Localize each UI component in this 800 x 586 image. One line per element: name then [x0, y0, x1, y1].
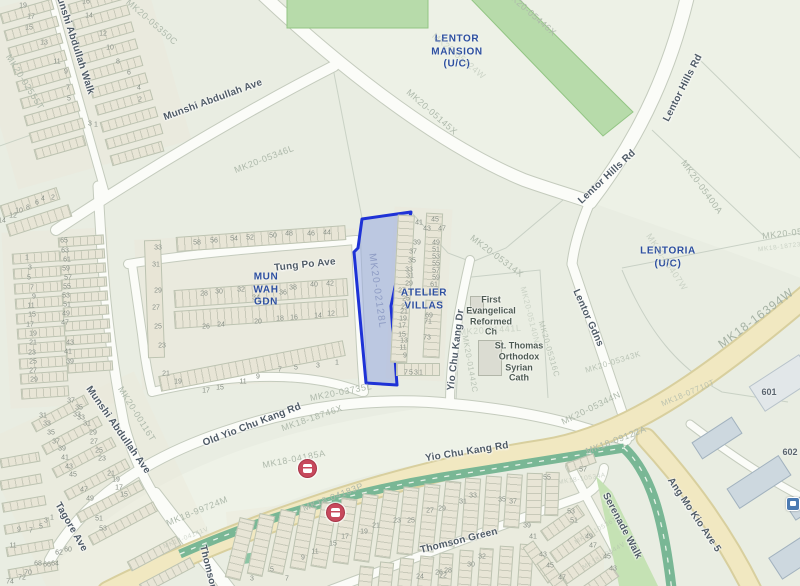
transit-poi-marker-icon[interactable]	[326, 503, 345, 522]
map-geometry	[0, 0, 800, 586]
map-canvas[interactable]: 1917151311975311614121086421412108642135…	[0, 0, 800, 586]
transit-poi-marker-icon[interactable]	[298, 459, 317, 478]
bus-stop-icon[interactable]	[786, 497, 800, 511]
